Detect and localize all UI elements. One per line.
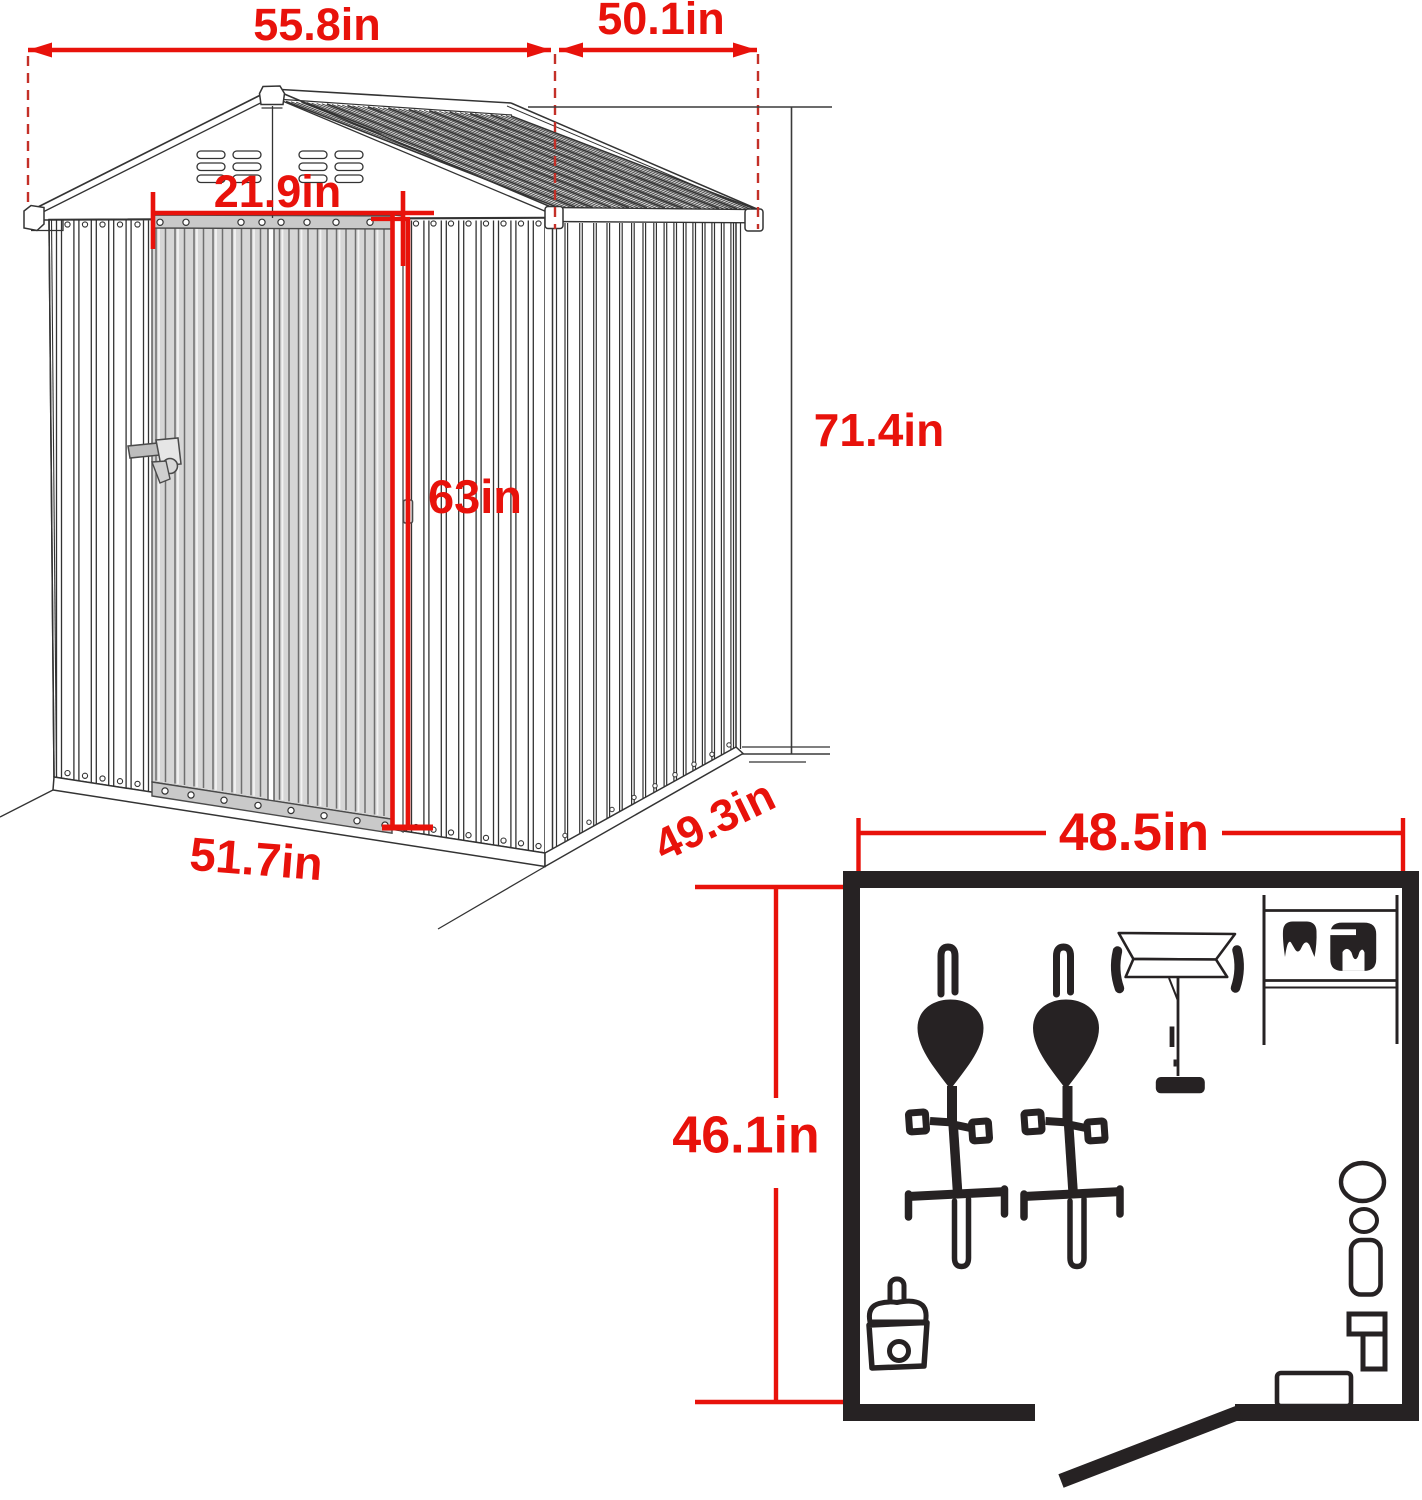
svg-text:71.4in: 71.4in	[814, 404, 944, 456]
svg-text:55.8in: 55.8in	[253, 0, 381, 50]
svg-text:51.7in: 51.7in	[188, 827, 325, 890]
svg-text:48.5in: 48.5in	[1059, 803, 1209, 862]
svg-text:46.1in: 46.1in	[672, 1107, 819, 1165]
svg-text:63in: 63in	[428, 470, 522, 523]
svg-text:21.9in: 21.9in	[214, 166, 342, 217]
svg-text:50.1in: 50.1in	[597, 0, 725, 44]
